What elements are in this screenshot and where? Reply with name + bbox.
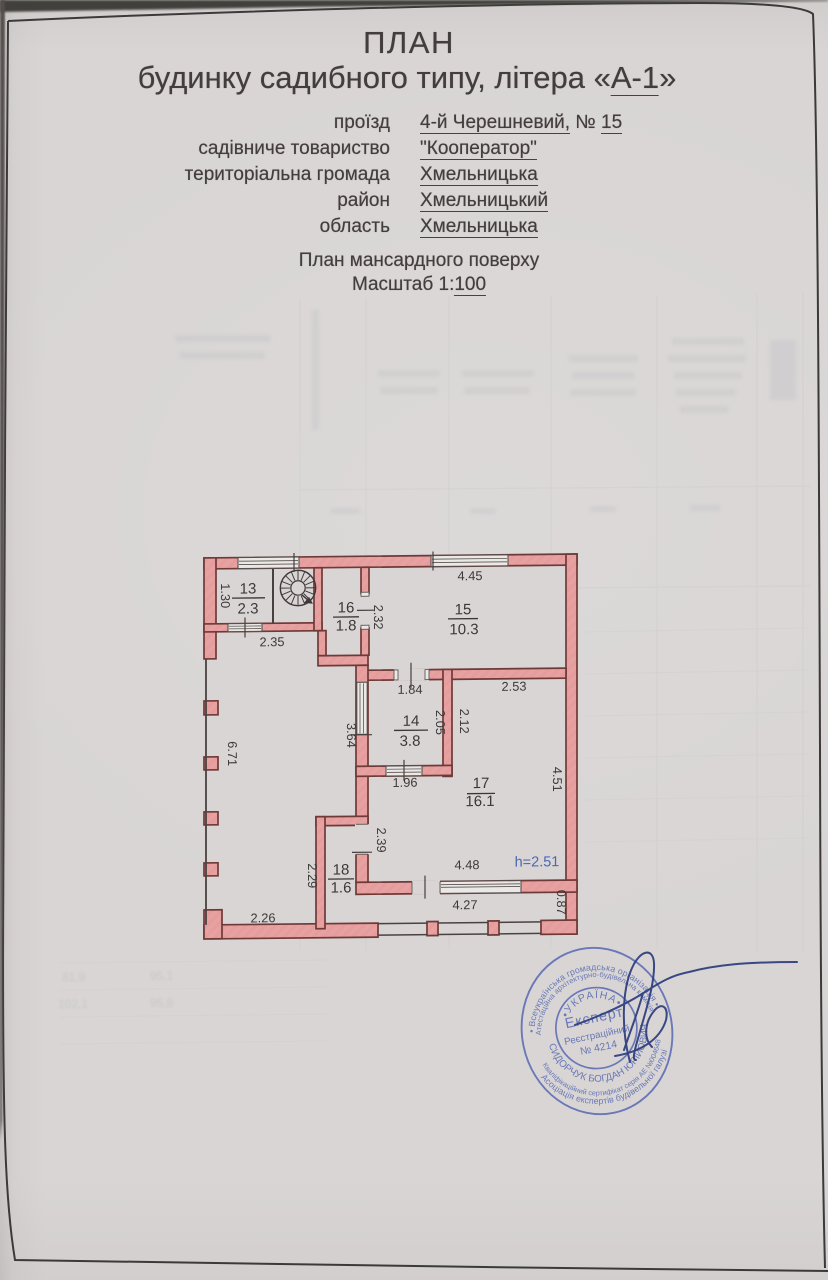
svg-text:1.84: 1.84 — [398, 682, 423, 697]
svg-text:1.30: 1.30 — [218, 583, 233, 608]
svg-text:4.27: 4.27 — [453, 897, 478, 912]
svg-text:2.3: 2.3 — [238, 600, 259, 617]
svg-text:10.3: 10.3 — [449, 621, 478, 638]
svg-text:2.26: 2.26 — [251, 910, 276, 925]
svg-text:2.39: 2.39 — [374, 828, 389, 853]
svg-text:2.05: 2.05 — [433, 710, 448, 735]
svg-text:81,9: 81,9 — [62, 970, 86, 984]
svg-text:3.64: 3.64 — [344, 723, 359, 748]
svg-text:16: 16 — [338, 599, 355, 616]
svg-text:1.96: 1.96 — [393, 775, 418, 790]
svg-text:2.32: 2.32 — [371, 605, 386, 630]
svg-text:102,1: 102,1 — [58, 997, 88, 1011]
svg-text:0.87: 0.87 — [554, 890, 569, 915]
svg-text:6.71: 6.71 — [225, 741, 240, 766]
svg-text:95,8: 95,8 — [150, 996, 174, 1010]
svg-text:1.8: 1.8 — [336, 617, 357, 634]
svg-text:95,1: 95,1 — [150, 969, 174, 983]
svg-text:h=2.51: h=2.51 — [515, 854, 560, 870]
svg-text:16.1: 16.1 — [465, 793, 494, 810]
svg-text:3.8: 3.8 — [400, 733, 421, 750]
svg-text:14: 14 — [403, 713, 420, 730]
svg-text:1.6: 1.6 — [331, 879, 352, 896]
svg-text:4.45: 4.45 — [458, 568, 483, 583]
svg-text:15: 15 — [455, 601, 472, 618]
svg-text:2.35: 2.35 — [260, 634, 285, 649]
svg-text:18: 18 — [333, 861, 350, 878]
svg-text:17: 17 — [473, 775, 490, 792]
svg-text:13: 13 — [240, 580, 257, 597]
svg-text:2.53: 2.53 — [502, 679, 527, 694]
svg-text:2.12: 2.12 — [457, 709, 472, 734]
svg-text:4.48: 4.48 — [455, 857, 480, 872]
svg-text:2.29: 2.29 — [305, 863, 320, 888]
svg-text:4.51: 4.51 — [550, 767, 565, 792]
